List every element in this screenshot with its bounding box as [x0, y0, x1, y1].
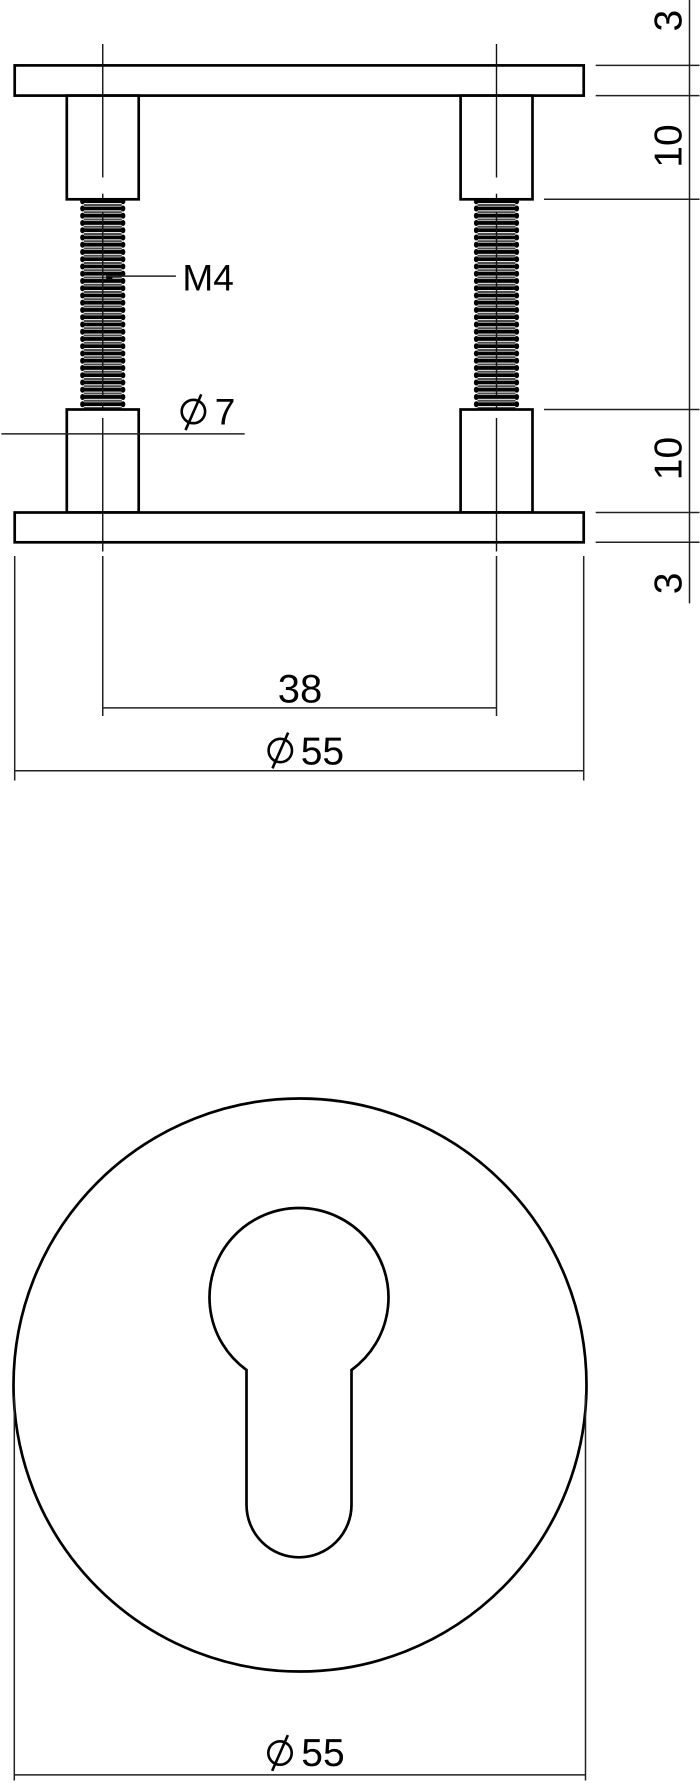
- svg-text:55: 55: [301, 1732, 344, 1775]
- svg-text:3: 3: [648, 10, 691, 32]
- svg-text:M4: M4: [182, 258, 233, 299]
- svg-text:38: 38: [278, 668, 323, 712]
- svg-text:7: 7: [215, 391, 236, 432]
- svg-text:55: 55: [301, 730, 344, 773]
- svg-text:10: 10: [648, 124, 691, 167]
- svg-text:10: 10: [648, 437, 691, 480]
- svg-text:3: 3: [648, 573, 691, 595]
